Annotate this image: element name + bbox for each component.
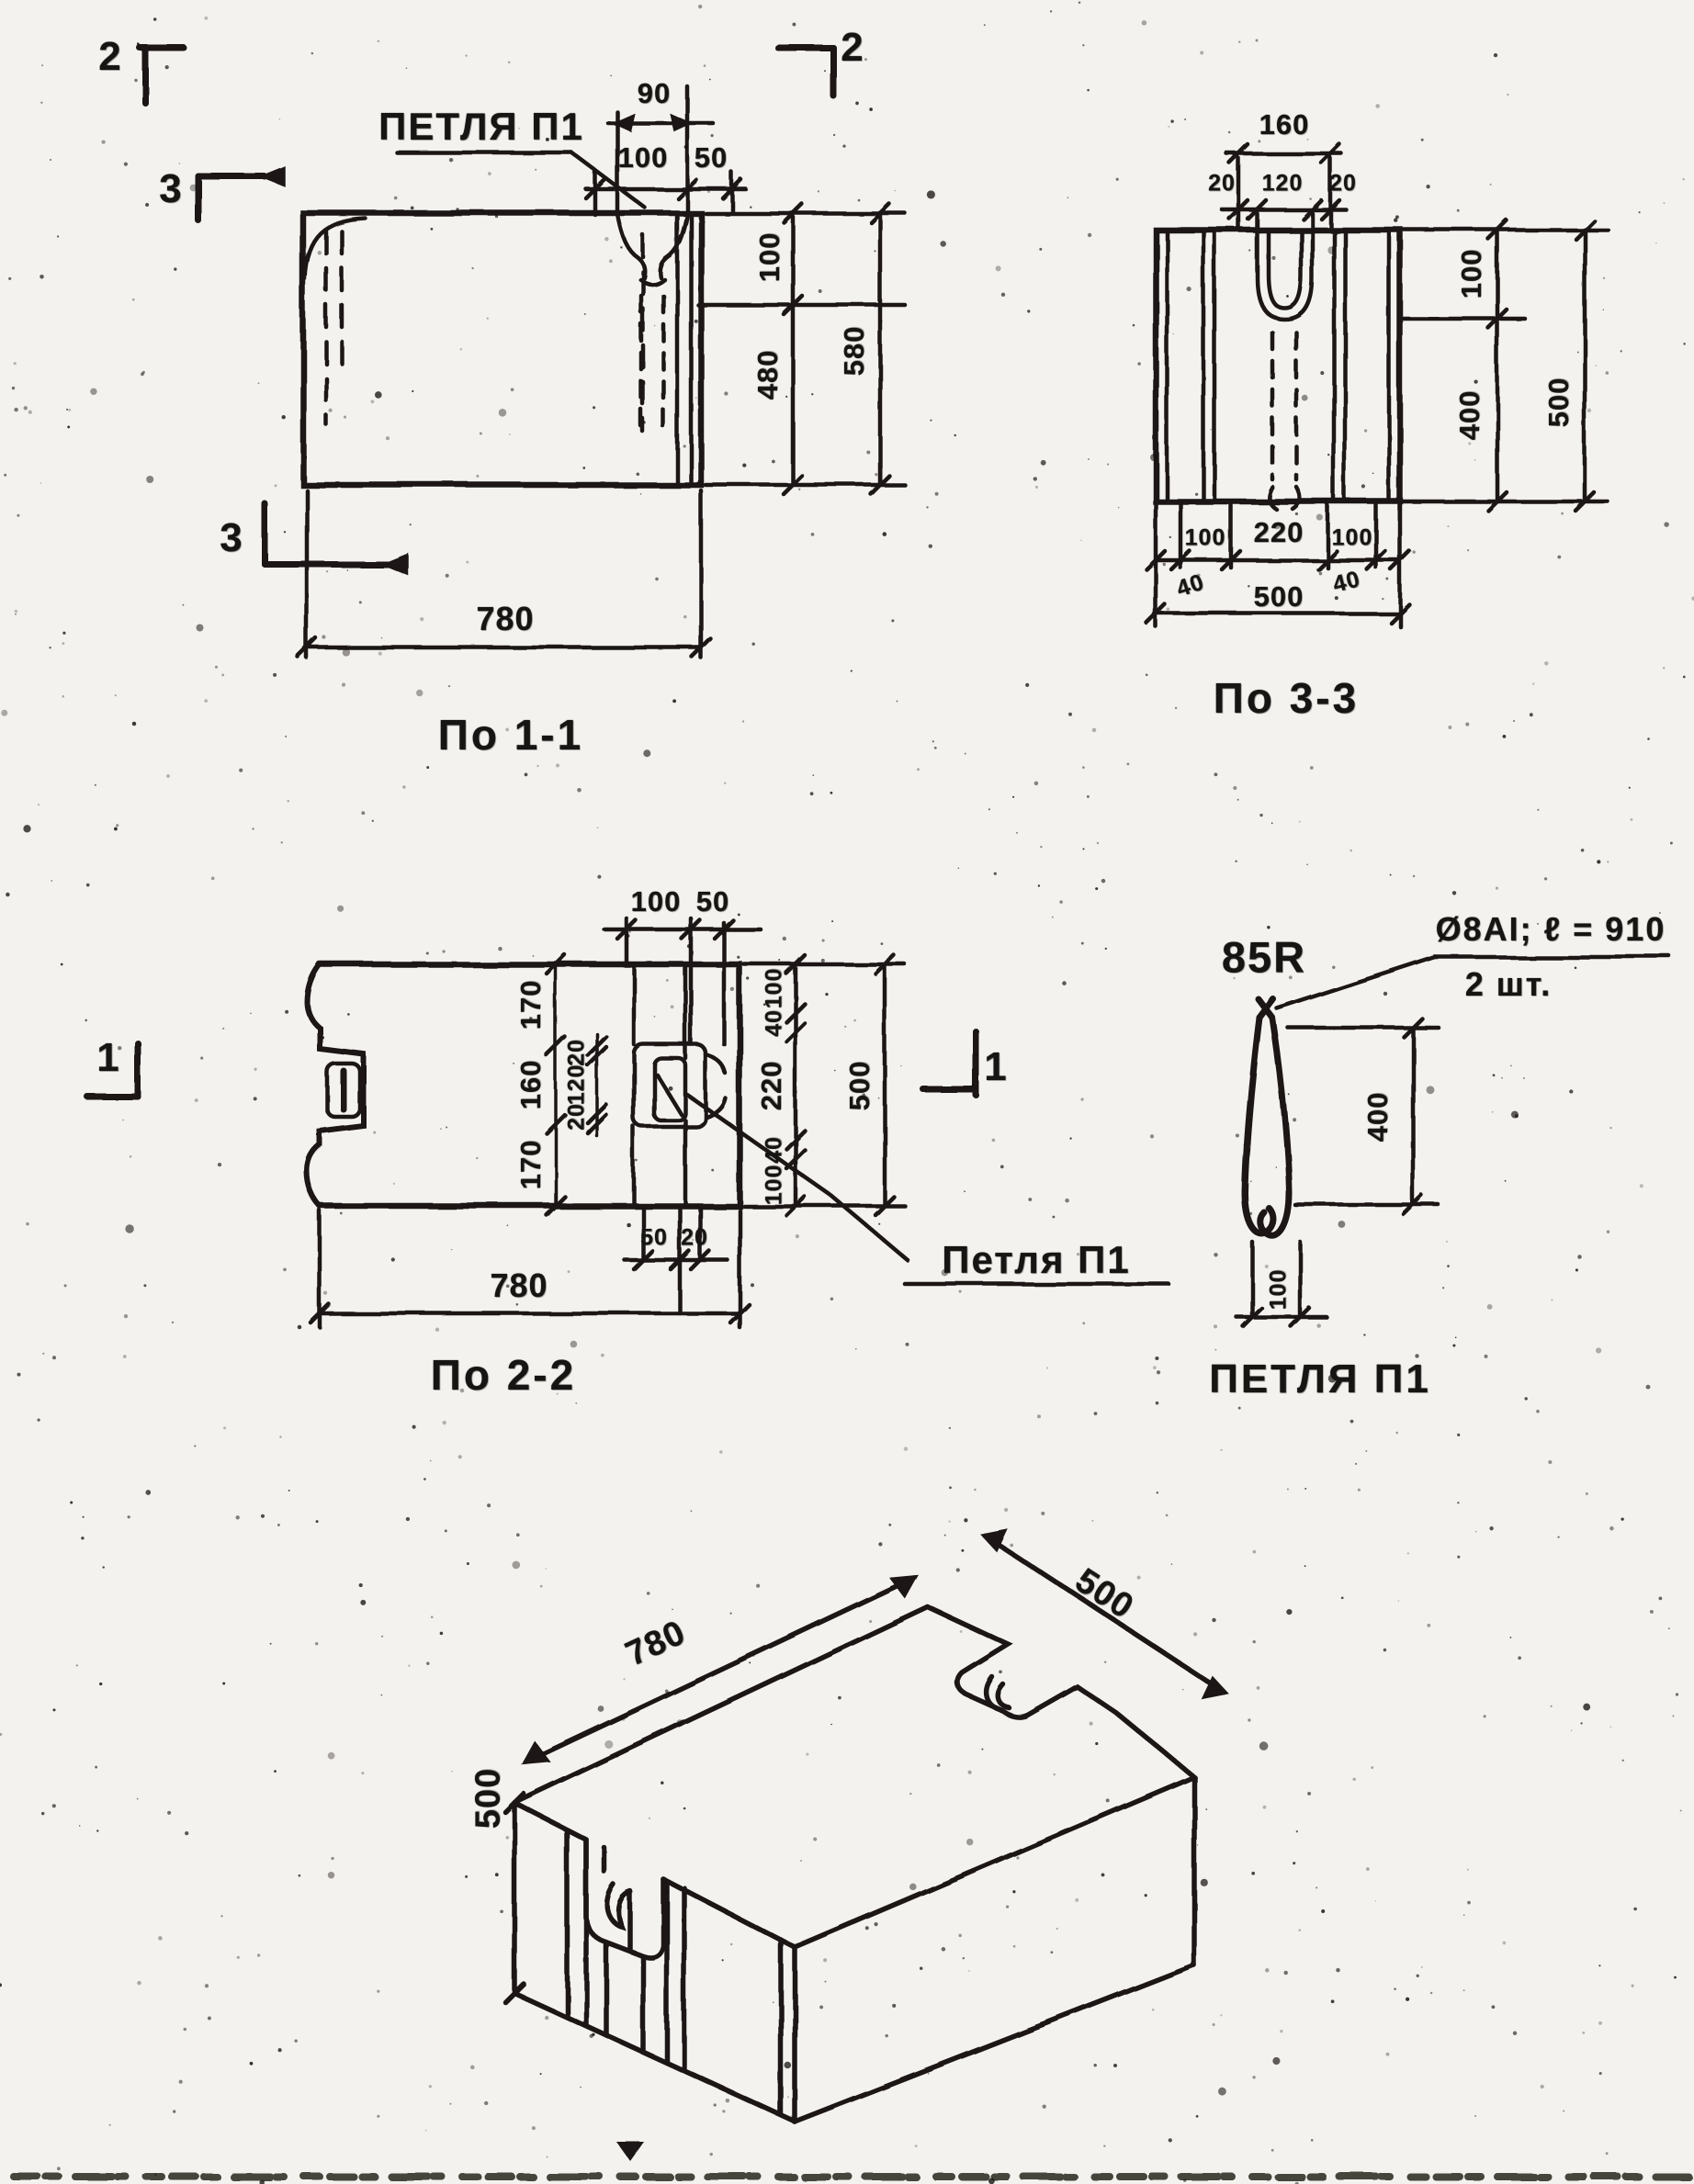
dim-label: 170 xyxy=(514,1140,548,1190)
dim-label: 400 xyxy=(1361,1092,1395,1143)
dim-label: 40 xyxy=(1173,569,1207,603)
loop-callout-label: Петля П1 xyxy=(942,1238,1130,1282)
dim-label: 580 xyxy=(838,326,871,377)
dim-label: 50 xyxy=(640,1225,668,1252)
view-title: По 1-1 xyxy=(438,710,583,760)
dim-label: 120 xyxy=(564,1064,591,1106)
section-marker-1-right: 1 xyxy=(984,1044,1007,1090)
dim-label: 780 xyxy=(620,1613,692,1674)
dim-label: 500 xyxy=(469,1768,509,1829)
dim-label: 160 xyxy=(1259,108,1310,141)
dim-label: 780 xyxy=(490,1266,548,1305)
dim-label: 120 xyxy=(1262,171,1304,197)
section-marker-2-right: 2 xyxy=(841,25,864,71)
dim-label: 100 xyxy=(631,885,682,918)
dim-label: 780 xyxy=(476,600,534,638)
dim-label: 160 xyxy=(514,1060,548,1110)
dim-label: 40 xyxy=(762,1136,788,1164)
dim-label: 50 xyxy=(695,141,728,174)
loop-callout-label: ПЕТЛЯ П1 xyxy=(378,105,584,149)
dim-label: 20 xyxy=(681,1225,708,1252)
scanned-drawing-sheet: 2 2 3 3 ПЕТЛЯ П1 90 100 50 100 480 580 7… xyxy=(0,0,1694,2184)
section-marker-3-bottom: 3 xyxy=(220,515,243,561)
section-marker-2-left: 2 xyxy=(98,34,121,80)
dim-label: 500 xyxy=(1542,377,1575,428)
dim-label: 100 xyxy=(1332,525,1373,552)
rebar-spec-qty: 2 шт. xyxy=(1465,965,1553,1004)
bend-radius-label: 85R xyxy=(1222,932,1306,983)
dim-label: 100 xyxy=(1185,525,1226,552)
dim-label: 20 xyxy=(564,1103,591,1131)
dim-label: 100 xyxy=(618,141,669,174)
dim-label: 20 xyxy=(1208,171,1236,197)
dim-label: 100 xyxy=(762,1165,788,1206)
dim-label: 480 xyxy=(751,350,785,400)
dim-label: 40 xyxy=(762,1009,788,1037)
dim-label: 100 xyxy=(1266,1269,1293,1311)
dim-label: 100 xyxy=(1455,249,1488,299)
dim-label: 500 xyxy=(1254,580,1304,614)
dim-label: 50 xyxy=(696,885,729,918)
dim-label: 500 xyxy=(1067,1561,1140,1627)
section-marker-1-left: 1 xyxy=(96,1035,119,1081)
dim-label: 40 xyxy=(1330,566,1363,598)
dim-label: 90 xyxy=(638,77,671,110)
detail-title: ПЕТЛЯ П1 xyxy=(1209,1357,1431,1402)
dim-label: 500 xyxy=(843,1061,876,1111)
drawing-labels: 2 2 3 3 ПЕТЛЯ П1 90 100 50 100 480 580 7… xyxy=(0,0,1694,2184)
dim-label: 220 xyxy=(755,1061,788,1111)
section-marker-3-top: 3 xyxy=(159,166,182,212)
dim-label: 220 xyxy=(1254,516,1304,549)
dim-label: 20 xyxy=(564,1039,591,1066)
dim-label: 20 xyxy=(1329,171,1357,197)
view-title: По 2-2 xyxy=(431,1350,576,1400)
dim-label: 170 xyxy=(514,980,548,1030)
dim-label: 100 xyxy=(762,968,788,1009)
dim-label: 400 xyxy=(1453,390,1486,441)
dim-label: 100 xyxy=(753,232,786,283)
rebar-spec-text: Ø8АI; ℓ = 910 xyxy=(1436,910,1666,949)
view-title: По 3-3 xyxy=(1214,673,1359,723)
